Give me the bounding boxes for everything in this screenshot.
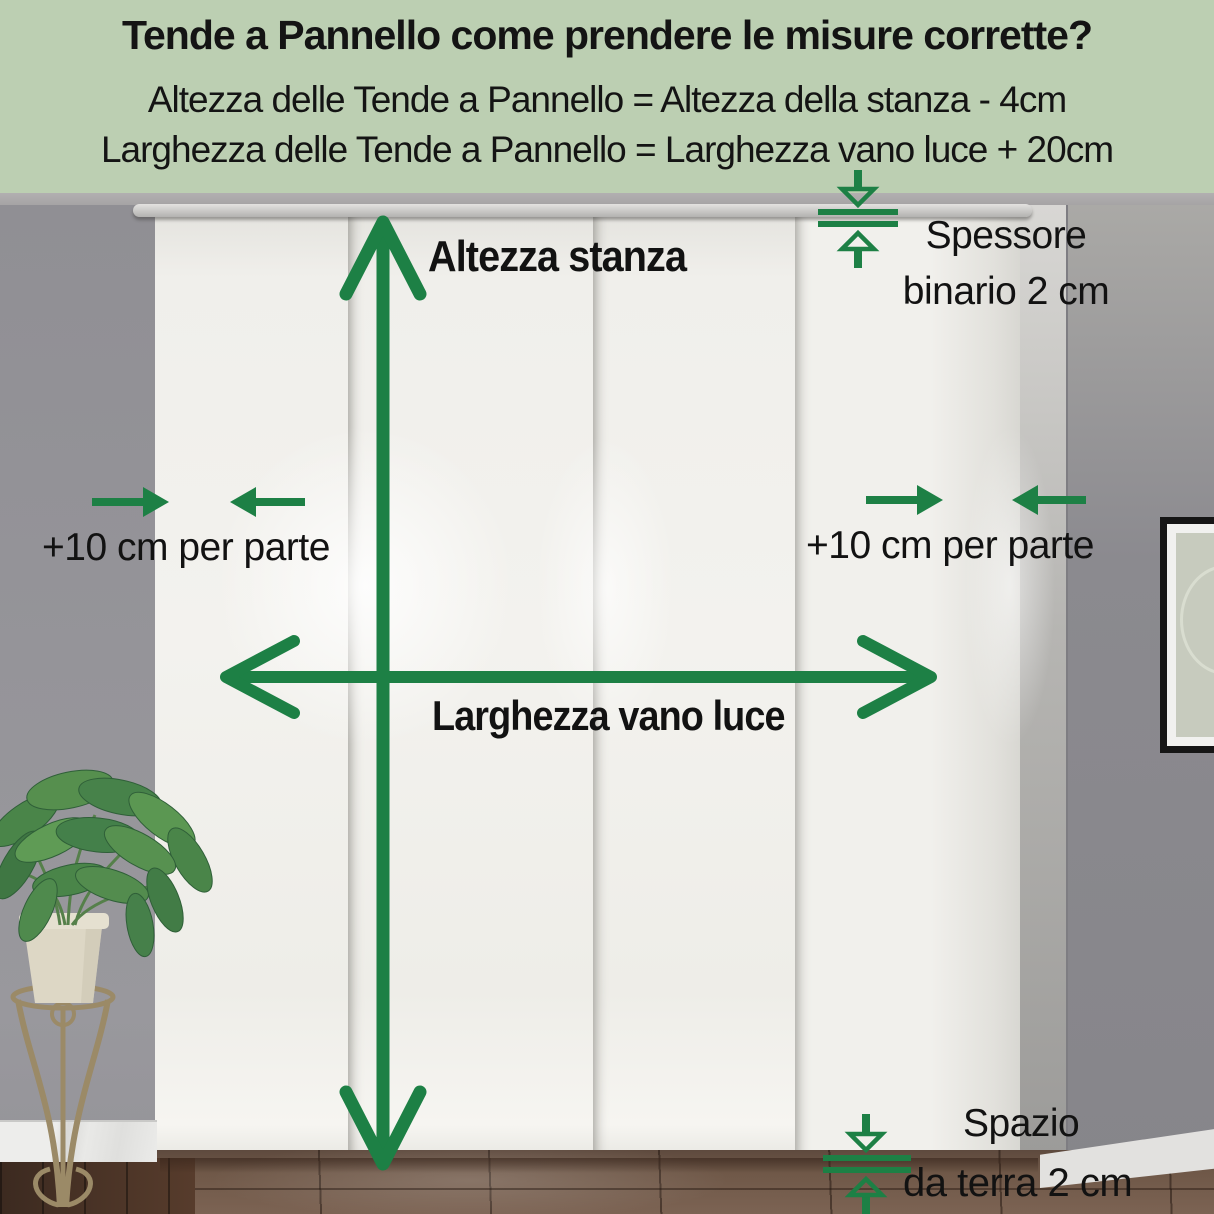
track-thickness-label-line1: Spessore (878, 208, 1134, 264)
floor-gap-label-line2: da terra 2 cm (903, 1162, 1132, 1204)
header-banner: Tende a Pannello come prendere le misure… (0, 0, 1214, 193)
track-thickness-label-line2: binario 2 cm (878, 264, 1134, 320)
frame-mat (1167, 524, 1214, 746)
track-thickness-label: Spessore binario 2 cm (878, 208, 1134, 320)
opening-width-label: Larghezza vano luce (432, 694, 785, 738)
plant-stand (13, 986, 113, 1207)
side-margin-right-label: +10 cm per parte (806, 526, 1094, 567)
infographic-canvas: Altezza stanza Larghezza vano luce +10 c… (0, 0, 1214, 1214)
room-height-label: Altezza stanza (428, 234, 686, 280)
artwork-circle-motif (1180, 565, 1214, 675)
window-light-glow (965, 426, 1055, 746)
page-title: Tende a Pannello come prendere le misure… (0, 12, 1214, 59)
width-formula-text: Larghezza delle Tende a Pannello = Largh… (0, 129, 1214, 171)
side-margin-left-label: +10 cm per parte (42, 528, 330, 569)
height-formula-text: Altezza delle Tende a Pannello = Altezza… (0, 79, 1214, 121)
floor-gap-label-line1: Spazio (963, 1104, 1079, 1145)
picture-frame (1160, 517, 1214, 753)
panel-curtains (155, 211, 1020, 1163)
potted-plant (0, 735, 230, 1214)
frame-artwork (1176, 533, 1214, 737)
plant-leaves (0, 763, 221, 959)
